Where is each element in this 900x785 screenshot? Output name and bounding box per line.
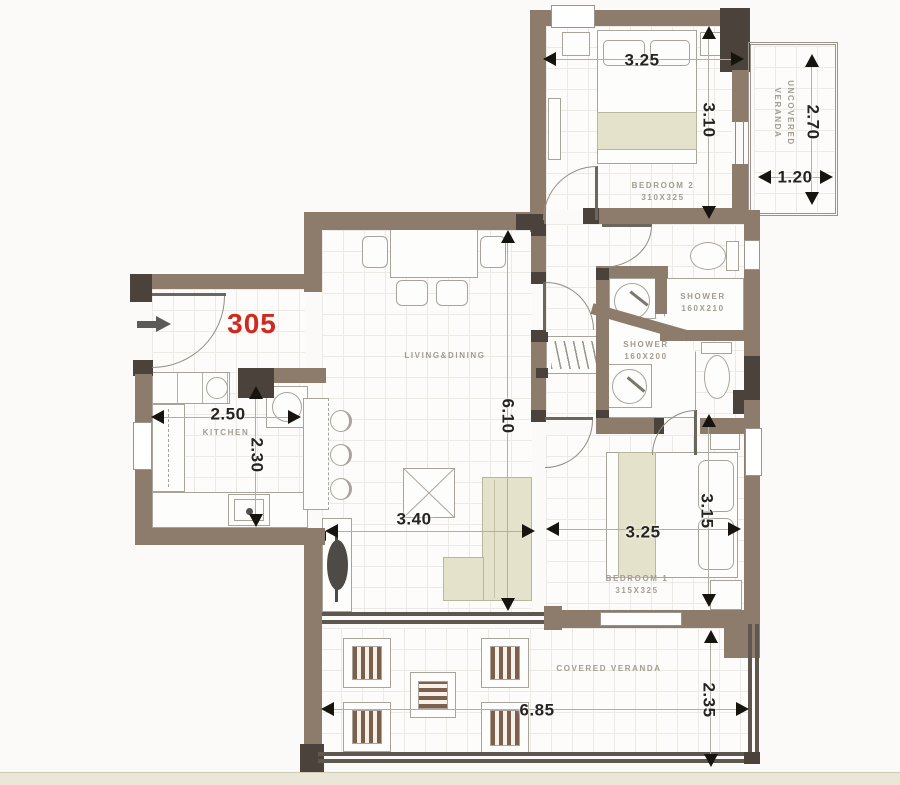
veranda-railing <box>318 759 760 763</box>
dimension-arrow <box>522 524 535 538</box>
armchair-cushion <box>490 646 520 680</box>
blanket-bedroom1 <box>618 452 656 578</box>
ground-strip <box>0 772 900 785</box>
dimension-arrow <box>758 170 771 184</box>
veranda-railing <box>748 624 752 756</box>
dimension-arrow <box>288 410 301 424</box>
dimension-arrow <box>702 594 716 607</box>
wall <box>135 374 152 422</box>
dimension-arrow <box>736 702 749 716</box>
wall <box>135 274 307 289</box>
stool-icon <box>330 444 352 466</box>
dimension-arrow <box>702 206 716 219</box>
sofa-chaise-icon <box>443 557 484 601</box>
dim-living-width: 3.40 <box>396 511 431 528</box>
stool-icon <box>330 478 352 500</box>
room-bedroom2-size: 310X325 <box>641 194 684 202</box>
veranda-railing <box>755 624 759 756</box>
wall <box>304 528 322 758</box>
floor-plan: 305 3.25 3.10 BEDROOM 2 310X325 UNCOVERE… <box>0 0 900 785</box>
wall <box>130 274 152 302</box>
toilet-icon <box>704 355 730 399</box>
wall <box>596 268 609 280</box>
stool-icon <box>330 410 352 432</box>
coffee-table-top <box>418 681 448 709</box>
armchair-cushion <box>352 646 382 680</box>
breakfast-bar <box>303 398 329 510</box>
chair-icon <box>396 280 428 306</box>
dining-table-icon <box>390 228 478 278</box>
window <box>745 428 762 476</box>
entrance-arrow-icon <box>156 316 171 332</box>
dimension-arrow <box>151 410 164 424</box>
wall <box>597 208 747 224</box>
room-shower2-label: SHOWER <box>623 341 669 349</box>
dimension-arrow <box>249 514 263 527</box>
dimension-arrow <box>820 170 833 184</box>
toilet-tank-icon <box>701 342 732 354</box>
dimension-arrow <box>321 702 334 716</box>
dimension-arrow <box>543 52 556 66</box>
dimension-arrow <box>805 192 819 205</box>
armchair-cushion <box>352 710 382 744</box>
grill-icon <box>327 540 348 590</box>
dim-bedroom1-width: 3.25 <box>625 524 660 541</box>
wall <box>596 418 654 434</box>
dim-bedroom2-depth: 3.10 <box>701 102 718 137</box>
chair-icon <box>362 236 388 268</box>
nightstand-icon <box>562 32 590 56</box>
dim-kitchen-width: 2.50 <box>210 406 245 423</box>
dim-covered-veranda-depth: 2.35 <box>701 682 718 717</box>
veranda-railing <box>318 752 760 756</box>
dimension-arrow <box>249 386 263 399</box>
room-bedroom2-label: BEDROOM 2 <box>632 182 695 190</box>
room-shower1-label: SHOWER <box>680 293 726 301</box>
dimension-arrow <box>728 522 741 536</box>
armchair-cushion <box>490 710 520 746</box>
wall <box>318 212 532 230</box>
window <box>600 612 682 626</box>
toilet-tank-icon <box>726 241 739 271</box>
room-shower1-size: 160X210 <box>681 305 724 313</box>
dim-living-length: 6.10 <box>500 398 517 433</box>
dimension-arrow <box>731 52 744 66</box>
entrance-arrow-icon <box>137 321 157 328</box>
dimension-arrow <box>325 524 338 538</box>
wall <box>732 164 748 214</box>
dimension-arrow <box>546 522 559 536</box>
wall <box>744 270 760 358</box>
sliding-door <box>735 120 744 166</box>
basin-icon <box>206 377 228 399</box>
room-bedroom1-label: BEDROOM 1 <box>606 575 669 583</box>
chair-icon <box>436 280 468 306</box>
wall <box>596 268 609 422</box>
dimension-line <box>338 531 522 532</box>
room-bedroom1-size: 315X325 <box>615 587 658 595</box>
toilet-icon <box>690 242 726 270</box>
dresser-icon <box>548 98 561 160</box>
wall <box>135 528 325 545</box>
dim-uncovered-veranda-width: 1.20 <box>777 169 812 186</box>
wall <box>744 210 760 240</box>
window <box>551 5 595 28</box>
wall <box>516 214 544 230</box>
wall <box>732 70 748 122</box>
unit-number: 305 <box>227 310 277 338</box>
dim-kitchen-depth: 2.30 <box>249 437 266 472</box>
window <box>133 422 152 470</box>
dimension-arrow <box>702 26 716 39</box>
dimension-arrow <box>704 754 718 767</box>
sliding-door <box>322 612 544 616</box>
room-uncovered-veranda-line2: VERANDA <box>773 88 782 139</box>
dimension-arrow <box>702 414 716 427</box>
room-shower2-size: 160X200 <box>624 353 667 361</box>
wall <box>744 752 760 764</box>
room-covered-veranda-label: COVERED VERANDA <box>556 665 661 673</box>
dimension-arrow <box>805 54 819 67</box>
dim-bedroom2-width: 3.25 <box>624 52 659 69</box>
room-living-label: LIVING&DINING <box>404 352 485 360</box>
blanket-bedroom2 <box>597 112 697 150</box>
dim-covered-veranda-width: 6.85 <box>519 702 554 719</box>
wall <box>536 332 548 342</box>
wall <box>531 410 546 422</box>
wall <box>135 470 152 530</box>
dimension-arrow <box>704 630 718 643</box>
sliding-door <box>322 620 544 624</box>
dimension-arrow <box>501 230 515 243</box>
dim-uncovered-veranda-depth: 2.70 <box>805 104 822 139</box>
dimension-arrow <box>501 598 515 611</box>
wall <box>655 268 667 314</box>
wall <box>536 368 548 378</box>
room-uncovered-veranda-line1: UNCOVERED <box>786 80 795 146</box>
wall <box>530 10 546 220</box>
sofa-seam <box>494 480 495 598</box>
dim-bedroom1-depth: 3.15 <box>699 493 716 528</box>
room-kitchen-label: KITCHEN <box>203 429 250 437</box>
room-uncovered-veranda-label: UNCOVERED VERANDA <box>770 80 796 146</box>
window <box>744 240 760 270</box>
